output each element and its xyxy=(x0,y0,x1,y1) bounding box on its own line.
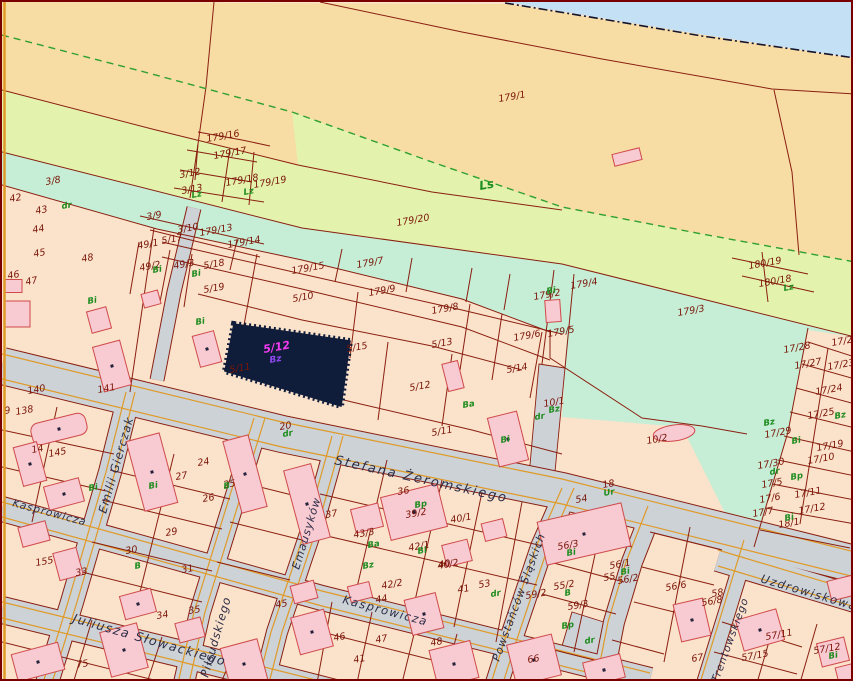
parcel-label[interactable]: 47 xyxy=(25,275,39,288)
parcel-label[interactable]: 54 xyxy=(575,493,589,506)
parcel-label[interactable]: 44 xyxy=(32,223,46,236)
building xyxy=(4,301,30,327)
parcel-label[interactable]: 42 xyxy=(9,192,23,205)
parcel-label[interactable]: 34 xyxy=(156,609,170,622)
landuse-label: Ba xyxy=(462,399,476,411)
landuse-label: Ba xyxy=(367,539,381,551)
parcel-label[interactable]: 24 xyxy=(197,456,211,469)
parcel-label[interactable]: 26 xyxy=(202,492,216,505)
building xyxy=(4,280,22,293)
parcel-label[interactable]: 37 xyxy=(325,508,339,521)
parcel-label[interactable]: 43 xyxy=(35,204,49,217)
parcel-label[interactable]: 41 xyxy=(353,653,367,666)
map-canvas[interactable]: 5/12Bz179/1179/20179/16179/173/123/13179… xyxy=(2,2,853,681)
landuse-label: Lz xyxy=(191,189,203,201)
parcel-label[interactable]: 46 xyxy=(7,269,21,282)
parcel-label[interactable]: 29 xyxy=(165,526,179,539)
parcel-label[interactable]: 75 xyxy=(76,658,90,671)
parcel-label[interactable]: 66 xyxy=(527,653,541,666)
parcel-label[interactable]: 45 xyxy=(275,598,289,611)
parcel-label[interactable]: 27 xyxy=(175,470,189,483)
parcel-label[interactable]: 31 xyxy=(181,563,195,576)
parcel-label[interactable]: 14 xyxy=(31,443,45,456)
landuse-label: Bz xyxy=(763,417,776,429)
landuse-label: Bz xyxy=(362,560,375,572)
parcel-label[interactable]: 47 xyxy=(375,633,389,646)
parcel-label[interactable]: 45 xyxy=(33,247,47,260)
parcel-label[interactable]: 36 xyxy=(397,485,411,498)
parcel-label[interactable]: 35 xyxy=(188,604,202,617)
parcel-label[interactable]: 48 xyxy=(81,252,95,265)
parcel-label[interactable]: 48 xyxy=(430,636,444,649)
parcel-label[interactable]: 46 xyxy=(333,631,347,644)
building xyxy=(545,300,561,323)
landuse-label: Lz xyxy=(243,186,255,198)
parcel-label[interactable]: 67 xyxy=(691,652,705,665)
landuse-label: Bz xyxy=(548,404,561,416)
landuse-label: Lz xyxy=(783,282,795,294)
landuse-label: Ls xyxy=(478,177,495,193)
parcel-label[interactable]: 55 xyxy=(603,571,617,584)
parcel-label[interactable]: 30 xyxy=(125,544,139,557)
parcel-label[interactable]: 33 xyxy=(75,566,89,579)
landuse-label: Bz xyxy=(834,410,847,422)
parcel-label[interactable]: 53 xyxy=(478,578,492,591)
cadastral-map-frame: 5/12Bz179/1179/20179/16179/173/123/13179… xyxy=(0,0,853,681)
parcel-label[interactable]: 41 xyxy=(457,583,471,596)
